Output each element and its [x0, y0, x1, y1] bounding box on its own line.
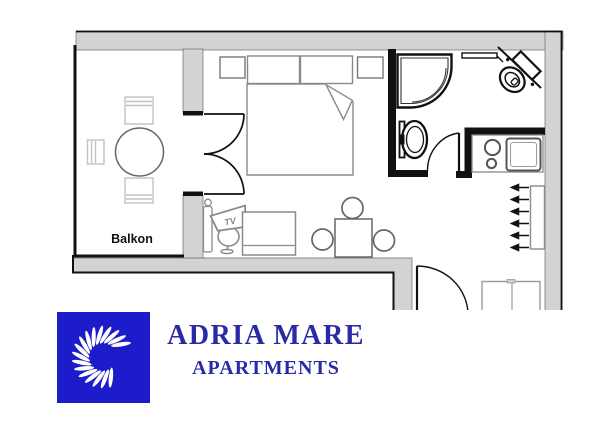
shower — [398, 55, 452, 108]
dining-table — [335, 219, 372, 257]
wardrobe-bar — [531, 186, 545, 249]
tv-stand-foot — [221, 250, 233, 254]
washbasin — [399, 121, 427, 158]
wardrobe-rack — [512, 185, 545, 251]
entrance-door — [417, 266, 468, 310]
washbasin-tap — [399, 135, 405, 145]
dining-set — [312, 198, 395, 258]
brand-text-block: ADRIA MARE APARTMENTS — [160, 322, 372, 380]
lamp-body — [204, 207, 213, 253]
apartment-floor-plan-page: Balkon TV — [0, 0, 600, 438]
nightstand-right — [358, 57, 384, 78]
toilet — [491, 47, 544, 101]
logo-background — [57, 312, 150, 403]
kitchen-north-wall — [465, 128, 546, 136]
balcony-partition-lower — [183, 195, 203, 258]
entry-bench — [482, 280, 540, 311]
brand-title: ADRIA MARE — [160, 322, 372, 350]
lamp-head — [205, 199, 212, 206]
bottom-left-wall — [73, 258, 412, 310]
sofa — [243, 212, 296, 255]
dining-chair-right — [374, 230, 395, 251]
branding: ADRIA MARE APARTMENTS — [57, 312, 557, 412]
brand-subtitle: APARTMENTS — [160, 357, 372, 380]
bathroom-door-swing — [427, 133, 459, 172]
towel-rail-bar — [462, 53, 497, 58]
door-jamb-top — [183, 111, 203, 116]
bench-body — [482, 282, 540, 311]
dining-chair-top — [342, 198, 363, 219]
bed-pillow-right — [301, 56, 353, 84]
balcony-label: Balkon — [111, 232, 153, 246]
bathroom-south-wall — [388, 170, 428, 177]
adria-mare-logo — [57, 312, 150, 403]
entrance-door-swing — [417, 266, 468, 310]
top-wall — [76, 31, 563, 50]
kitchenette — [472, 135, 543, 172]
french-balcony-door — [183, 111, 244, 196]
right-wall — [545, 31, 562, 310]
door-swing-lower — [204, 154, 244, 194]
floor-lamp — [204, 199, 213, 252]
cooktop-burner-large — [485, 140, 500, 155]
sofa-body — [243, 212, 296, 255]
hanger-arrows — [512, 185, 530, 251]
towel-rail-tick — [497, 56, 503, 62]
floor-plan: Balkon TV — [0, 0, 600, 310]
balcony-partition-upper — [183, 49, 203, 113]
door-jamb-bottom — [183, 192, 203, 197]
kitchen-west-wall — [465, 130, 473, 178]
door-swing-upper — [204, 114, 244, 154]
bed-pillow-left — [248, 56, 300, 84]
cooktop-burner-small — [487, 159, 496, 168]
bathroom-west-wall — [388, 49, 396, 177]
towel-rail — [462, 53, 503, 62]
bathroom-door — [427, 133, 459, 172]
nightstand-left — [220, 57, 245, 78]
balcony-round-table — [116, 128, 164, 176]
dining-chair-left — [312, 229, 333, 250]
bench-knob — [507, 280, 515, 284]
balcony-furniture — [88, 97, 164, 203]
